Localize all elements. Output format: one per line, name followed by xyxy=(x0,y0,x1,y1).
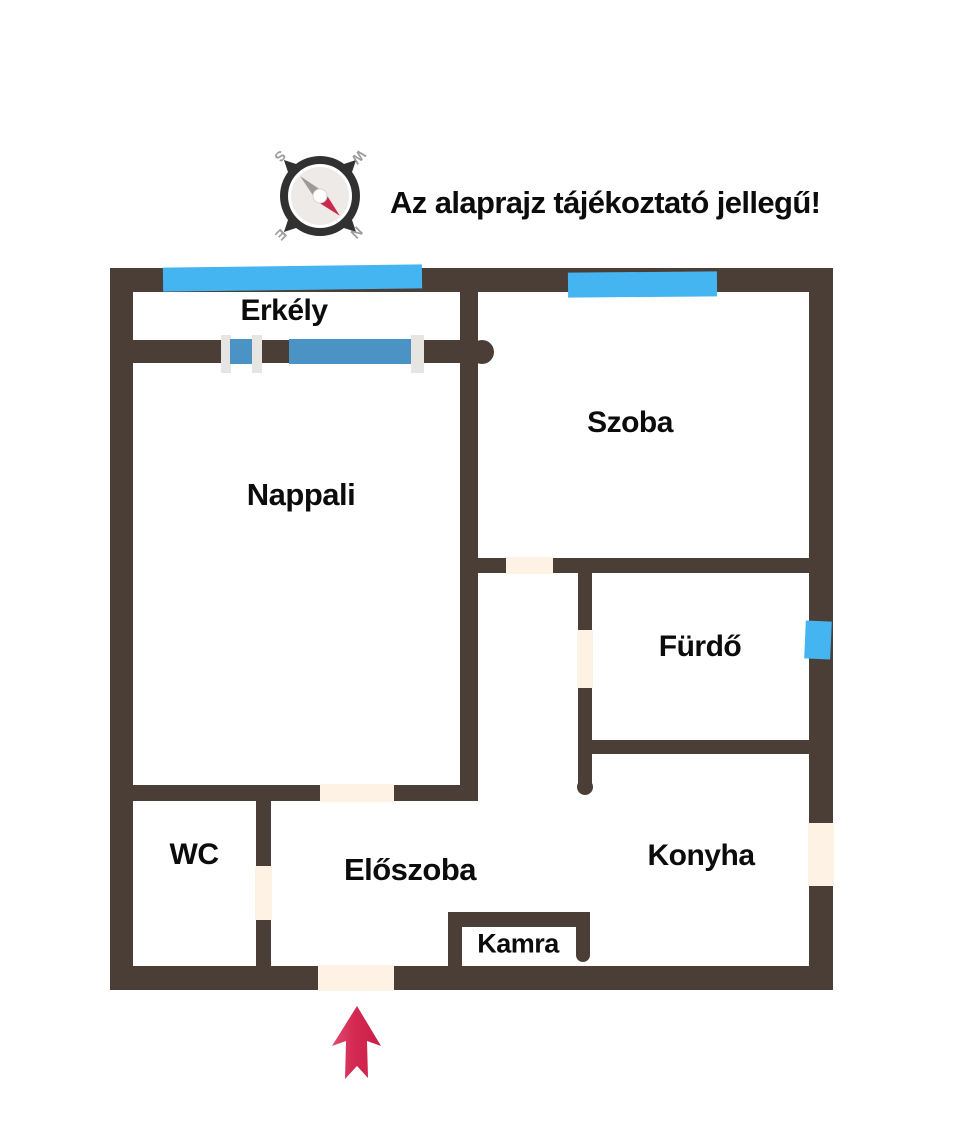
room-label-erkely: Erkély xyxy=(240,294,327,328)
balcony-railing-window xyxy=(163,264,422,291)
plan-disclaimer-title: Az alaprajz tájékoztató jellegű! xyxy=(390,185,820,221)
entrance-arrow-icon xyxy=(323,1000,391,1084)
room-label-konyha: Konyha xyxy=(647,839,754,873)
room-label-kamra: Kamra xyxy=(477,929,559,960)
room-label-szoba: Szoba xyxy=(587,406,673,440)
wall-kamra-right-endcap xyxy=(576,948,590,962)
outer-wall-bottom xyxy=(110,966,833,990)
room-label-furdo: Fürdő xyxy=(659,630,741,664)
wall-erkely-nappali-endcap xyxy=(470,340,494,364)
outer-wall-left xyxy=(110,268,133,990)
compass-letter-s: S xyxy=(271,147,289,165)
room-label-nappali: Nappali xyxy=(247,477,355,513)
wall-kamra-left xyxy=(448,927,462,966)
floorplan-page: N E S W Az alaprajz tájékoztató jellegű! xyxy=(0,0,960,1140)
wall-nappali-szoba xyxy=(460,292,478,798)
konyha-wall-opening xyxy=(808,823,834,886)
entrance-door-opening xyxy=(318,965,394,991)
nappali-door-opening xyxy=(320,784,394,802)
wall-kamra-top xyxy=(448,912,590,927)
wall-furdo-konyha xyxy=(585,740,833,754)
szoba-window xyxy=(568,271,717,297)
entrance-arrow-shape xyxy=(332,1006,381,1079)
balcony-door-frame-middle xyxy=(252,335,262,373)
wc-door-opening xyxy=(255,866,272,920)
balcony-door-pane-large xyxy=(289,339,412,364)
balcony-door-frame-right xyxy=(411,335,424,373)
room-label-eloszoba: Előszoba xyxy=(344,852,476,888)
furdo-door-opening xyxy=(577,630,593,688)
room-label-wc: WC xyxy=(170,838,219,872)
wall-furdo-left-endcap xyxy=(577,779,593,795)
compass-icon: N E S W xyxy=(258,134,382,258)
wall-nappali-eloszoba xyxy=(133,785,478,801)
szoba-door-opening xyxy=(506,557,553,574)
furdo-window xyxy=(804,620,832,659)
balcony-door-pane-small xyxy=(230,339,254,364)
